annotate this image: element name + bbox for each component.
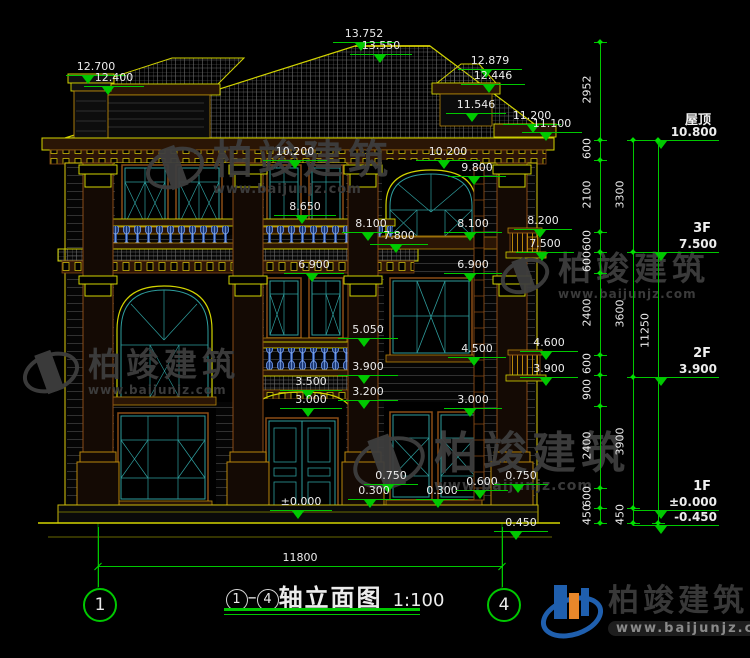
floor-level-marker: 3F7.500 xyxy=(633,252,719,253)
watermark: 柏竣建筑www.baijunjz.com xyxy=(500,252,710,300)
watermark-url: www.baijunjz.com xyxy=(88,384,240,396)
dimension-chain-label: 11250 xyxy=(639,296,652,366)
dimension-chain-label: 3900 xyxy=(614,407,627,477)
elevation-marker: 3.200 xyxy=(338,400,398,401)
dimension-chain-tick xyxy=(594,508,607,509)
elevation-marker: 7.500 xyxy=(516,252,574,253)
elevation-drawing-canvas: 11800 1 4 1–4轴立面图1:100 柏竣建筑 www.baijunjz… xyxy=(0,0,750,658)
elevation-marker: 7.800 xyxy=(370,244,428,245)
elevation-marker: 0.300 xyxy=(416,499,468,500)
window-1f-left xyxy=(114,408,216,507)
dimension-chain-tick xyxy=(594,488,607,489)
extension-line-right xyxy=(502,527,503,587)
title-dash: – xyxy=(248,587,257,608)
elevation-marker: 3.000 xyxy=(280,408,342,409)
window-2f-middle xyxy=(263,274,348,344)
elevation-marker: ±0.000 xyxy=(270,510,332,511)
elevation-marker: 0.300 xyxy=(348,499,400,500)
dimension-chain-tick xyxy=(627,140,640,141)
elevation-marker: 12.400 xyxy=(84,86,144,87)
elevation-marker: 12.446 xyxy=(461,84,525,85)
dimension-chain-tick xyxy=(652,140,665,141)
dimension-chain-tick xyxy=(652,523,665,524)
dimension-label-11800: 11800 xyxy=(270,551,330,564)
dimension-chain-tick xyxy=(594,140,607,141)
brand-logo: 柏竣建筑 www.baijunjz.com xyxy=(540,577,750,645)
elevation-marker: 3.900 xyxy=(338,375,398,376)
brand-url: www.baijunjz.com xyxy=(608,621,750,636)
elevation-marker: 9.800 xyxy=(448,176,506,177)
elevation-marker: 3.900 xyxy=(520,377,578,378)
dimension-chain-label: 3600 xyxy=(614,279,627,349)
watermark-text: 柏竣建筑 xyxy=(88,348,240,381)
dimension-chain-label: 450 xyxy=(614,480,627,550)
elevation-marker: 5.050 xyxy=(338,338,398,339)
dimension-chain-tick xyxy=(594,355,607,356)
ground-line xyxy=(38,523,560,537)
axis-bubble-1: 1 xyxy=(83,588,117,622)
elevation-marker: 3.000 xyxy=(444,408,502,409)
brand-logo-icon xyxy=(540,577,602,645)
elevation-marker: 4.600 xyxy=(520,351,578,352)
dimension-chain-tick xyxy=(594,406,607,407)
dimension-chain-label: 450 xyxy=(581,480,594,550)
elevation-marker: 8.650 xyxy=(274,215,336,216)
brand-name: 柏竣建筑 xyxy=(608,586,750,617)
dimension-chain-tick xyxy=(594,375,607,376)
floor-level-marker: -0.450 xyxy=(633,525,719,526)
watermark-logo-icon xyxy=(17,344,85,400)
dimension-chain-tick xyxy=(594,252,607,253)
elevation-marker: 6.900 xyxy=(284,273,344,274)
dimension-chain-label: 3300 xyxy=(614,160,627,230)
elevation-marker: 13.550 xyxy=(350,54,412,55)
elevation-marker: 0.750 xyxy=(494,484,548,485)
title-underline-thick xyxy=(224,608,420,611)
dimension-chain-line xyxy=(658,140,659,523)
elevation-marker: 10.200 xyxy=(263,160,327,161)
elevation-marker: 0.450 xyxy=(494,531,548,532)
elevation-marker: 4.500 xyxy=(448,357,506,358)
dimension-chain-tick xyxy=(594,42,607,43)
watermark-url: www.baijunjz.com xyxy=(213,183,393,196)
watermark-logo-icon xyxy=(140,139,210,197)
elevation-marker: 3.500 xyxy=(280,390,342,391)
elevation-marker: 11.546 xyxy=(446,113,506,114)
elevation-marker: 0.600 xyxy=(456,490,508,491)
title-underline-thin xyxy=(224,614,420,615)
dimension-chain-tick xyxy=(594,232,607,233)
dimension-line-11800 xyxy=(98,566,502,567)
dimension-chain-tick xyxy=(627,377,640,378)
extension-line-left xyxy=(98,527,99,587)
watermark: 柏竣建筑www.baijunjz.com xyxy=(22,348,240,396)
dimension-chain-tick xyxy=(594,160,607,161)
dimension-chain-tick xyxy=(594,273,607,274)
elevation-marker: 6.900 xyxy=(444,273,502,274)
dimension-chain-tick xyxy=(627,508,640,509)
dimension-chain-tick xyxy=(627,523,640,524)
dimension-chain-tick xyxy=(594,523,607,524)
dimension-chain-line xyxy=(633,140,634,523)
elevation-marker: 8.100 xyxy=(444,232,502,233)
dimension-chain-line xyxy=(600,42,601,523)
floor-level-marker: 2F3.900 xyxy=(633,377,719,378)
dimension-chain-tick xyxy=(627,252,640,253)
floor-level-marker: 屋顶10.800 xyxy=(633,140,719,141)
elevation-marker: 8.200 xyxy=(514,229,572,230)
elevation-marker: 11.100 xyxy=(522,132,582,133)
